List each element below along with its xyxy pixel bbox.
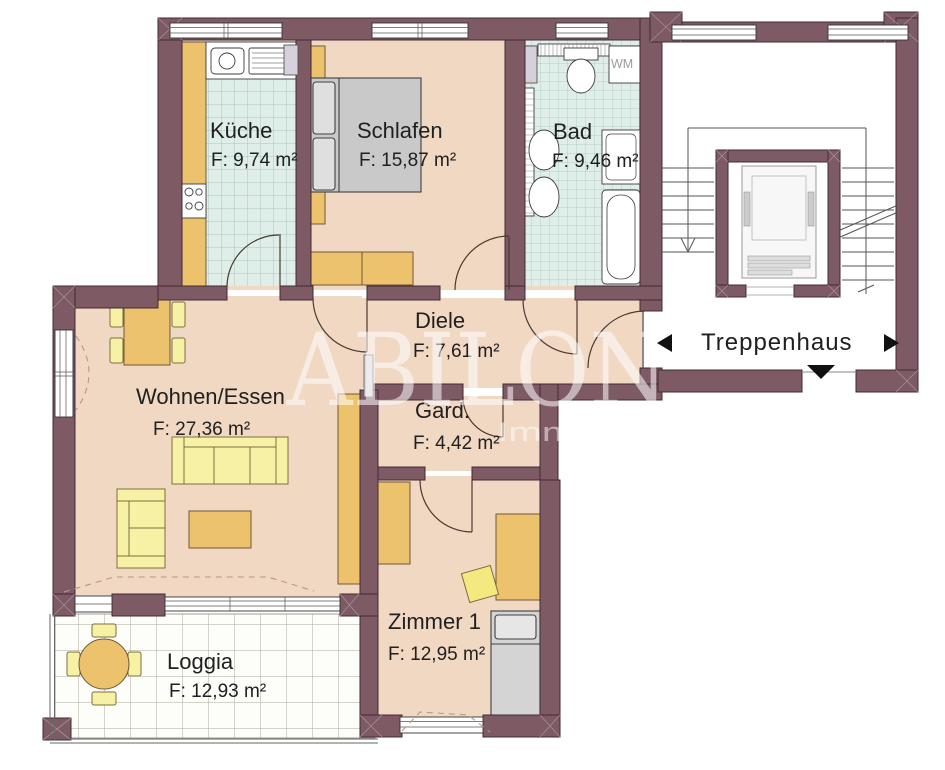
watermark: ABILON Immobilien bbox=[286, 312, 692, 447]
wohnen-area: F: 27,36 m² bbox=[153, 419, 250, 440]
nightstand bbox=[311, 192, 325, 224]
zimmer1-label: Zimmer 1 bbox=[388, 609, 481, 634]
schlafen-label: Schlafen bbox=[357, 118, 443, 143]
chair bbox=[110, 338, 123, 363]
bad-area: F: 9,46 m² bbox=[552, 151, 639, 172]
duct-shaft bbox=[284, 45, 298, 75]
sofa bbox=[172, 437, 288, 484]
chair bbox=[92, 624, 116, 637]
treppenhaus-label: Treppenhaus bbox=[701, 329, 853, 356]
floor-plan-drawing: Küche F: 9,74 m² Schlafen F: 15,87 m² Ba… bbox=[0, 0, 945, 770]
stairwell-window bbox=[828, 25, 908, 40]
stairwell-window bbox=[672, 25, 756, 40]
elevator bbox=[742, 166, 816, 295]
kitchen-window bbox=[170, 23, 282, 38]
chair bbox=[128, 652, 141, 676]
wardrobe bbox=[378, 482, 410, 564]
loggia-label: Loggia bbox=[167, 649, 234, 674]
schlafen-area: F: 15,87 m² bbox=[359, 150, 456, 171]
loveseat bbox=[117, 489, 165, 568]
living-room-window bbox=[55, 330, 73, 417]
kueche-area: F: 9,74 m² bbox=[211, 150, 298, 171]
gard-area: F: 4,42 m² bbox=[413, 433, 500, 454]
kitchen-counter bbox=[182, 42, 206, 286]
nightstand bbox=[311, 46, 325, 78]
stair-steps-right bbox=[842, 168, 894, 280]
wohnen-label: Wohnen/Essen bbox=[136, 384, 285, 409]
stove bbox=[182, 184, 206, 218]
kueche-label: Küche bbox=[210, 118, 272, 143]
loggia-door-sill bbox=[75, 596, 112, 612]
round-table bbox=[79, 639, 129, 689]
chair bbox=[172, 302, 185, 327]
bedroom-window bbox=[372, 23, 468, 38]
loggia-area: F: 12,93 m² bbox=[169, 681, 266, 702]
floor-plan: Küche F: 9,74 m² Schlafen F: 15,87 m² Ba… bbox=[0, 0, 945, 770]
bathtub bbox=[602, 190, 640, 284]
washing-machine-label: WM bbox=[611, 57, 633, 71]
kitchen-tile-floor bbox=[206, 76, 297, 286]
washbasin bbox=[529, 177, 559, 217]
watermark-brand: ABILON bbox=[286, 312, 669, 429]
chair bbox=[92, 692, 116, 705]
chair bbox=[172, 338, 185, 363]
zimmer1-area: F: 12,95 m² bbox=[388, 644, 485, 665]
desk bbox=[496, 514, 542, 600]
railing-bottom bbox=[50, 739, 378, 743]
sideboard bbox=[311, 252, 413, 285]
chair bbox=[67, 652, 80, 676]
coffee-table bbox=[189, 511, 251, 548]
bath-window bbox=[556, 23, 608, 38]
loggia-band-window bbox=[165, 597, 340, 611]
watermark-word: Immobilien bbox=[497, 417, 692, 447]
single-bed bbox=[491, 611, 540, 722]
bad-label: Bad bbox=[553, 119, 592, 144]
